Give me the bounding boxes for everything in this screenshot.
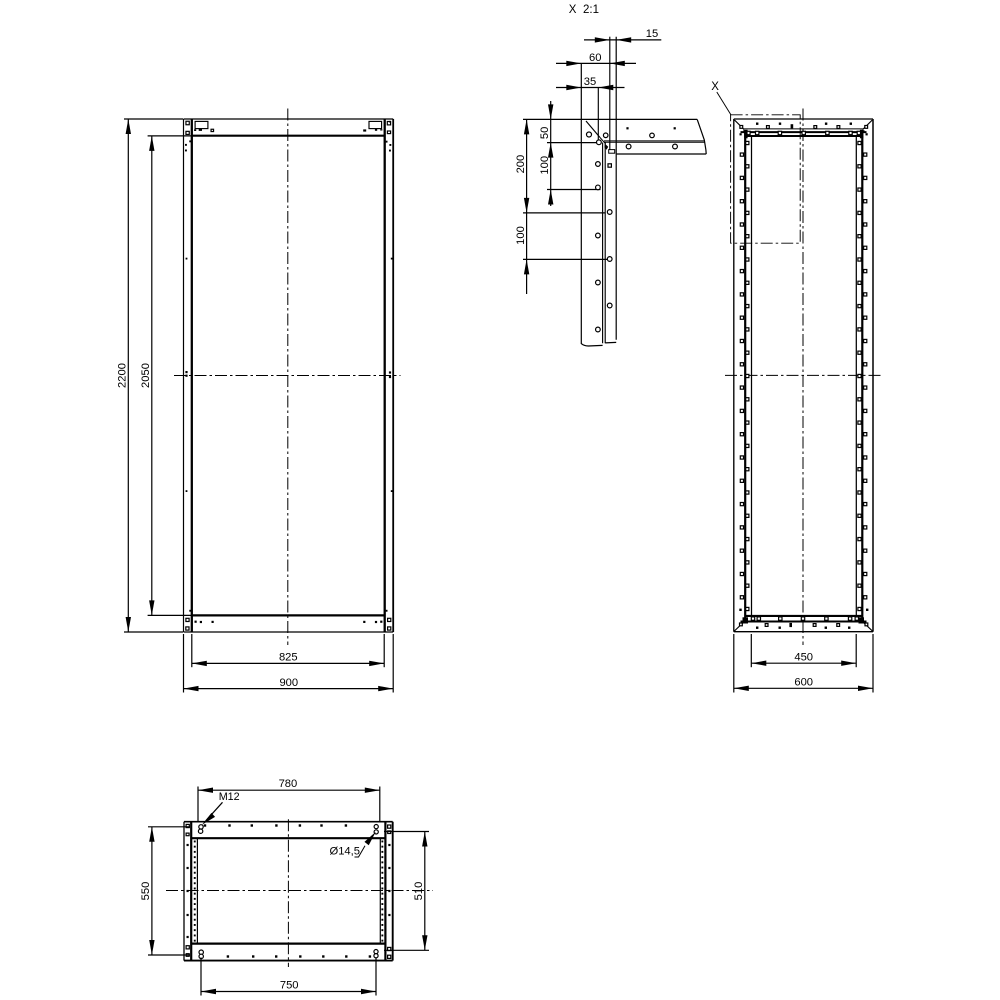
- svg-text:600: 600: [794, 677, 813, 689]
- svg-text:X: X: [569, 4, 577, 16]
- svg-text:825: 825: [279, 652, 298, 664]
- svg-text:X: X: [711, 81, 719, 93]
- svg-text:200: 200: [515, 155, 527, 174]
- svg-text:900: 900: [279, 677, 298, 689]
- svg-text:2050: 2050: [140, 363, 152, 388]
- svg-text:550: 550: [140, 882, 152, 901]
- svg-text:750: 750: [280, 980, 299, 992]
- svg-text:15: 15: [646, 28, 658, 40]
- svg-text:780: 780: [279, 778, 298, 790]
- svg-text:100: 100: [539, 156, 551, 175]
- svg-text:M12: M12: [219, 791, 240, 803]
- svg-text:50: 50: [539, 127, 551, 139]
- svg-text:2:1: 2:1: [583, 4, 599, 16]
- svg-text:2200: 2200: [116, 363, 128, 388]
- svg-text:100: 100: [515, 226, 527, 245]
- svg-text:510: 510: [413, 882, 425, 901]
- svg-text:35: 35: [584, 76, 596, 88]
- svg-text:Ø14,5: Ø14,5: [330, 845, 360, 857]
- svg-text:60: 60: [589, 52, 601, 64]
- svg-text:450: 450: [794, 652, 813, 664]
